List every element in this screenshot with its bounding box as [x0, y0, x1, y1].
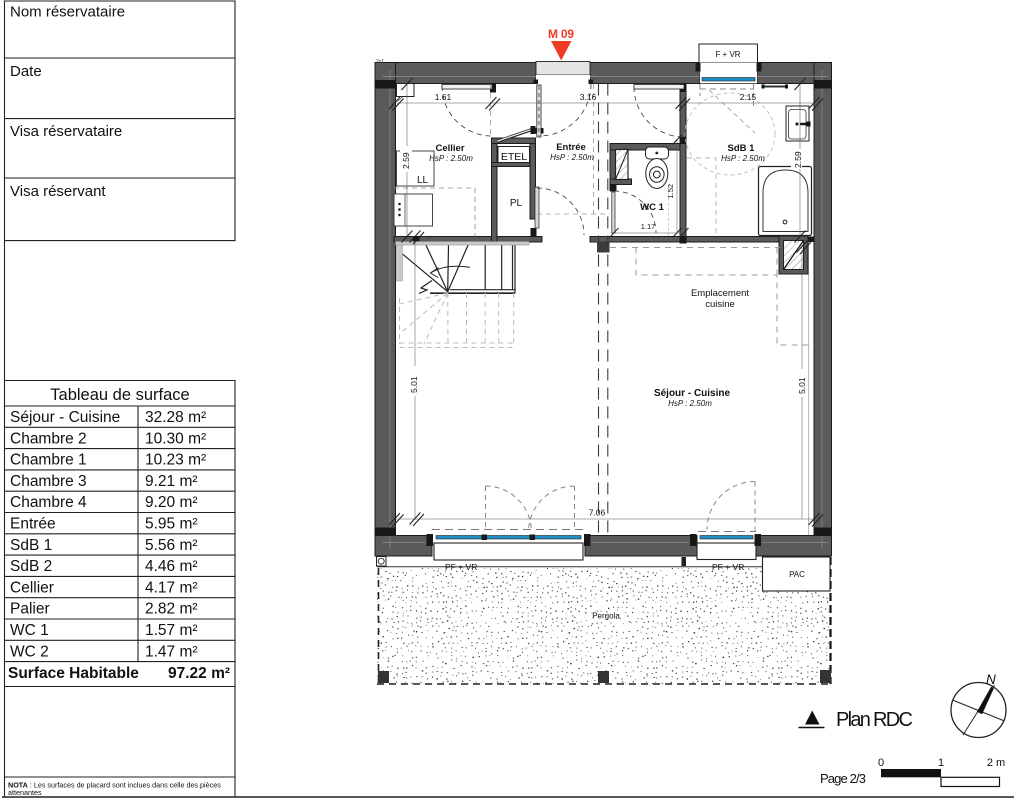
svg-text:Cellier: Cellier [435, 143, 464, 154]
svg-text:Nom réservataire: Nom réservataire [10, 4, 125, 21]
svg-text:cuisine: cuisine [705, 299, 735, 310]
svg-text:1.52: 1.52 [666, 184, 675, 199]
svg-text:Visa réservataire: Visa réservataire [10, 123, 122, 140]
svg-text:7.06: 7.06 [589, 508, 606, 518]
svg-text:HsP : 2.50m: HsP : 2.50m [668, 399, 712, 408]
svg-text:5.56 m²: 5.56 m² [145, 537, 198, 554]
svg-text:2.15: 2.15 [740, 92, 757, 102]
svg-text:M 09: M 09 [548, 27, 574, 41]
svg-text:5.01: 5.01 [409, 376, 419, 393]
svg-text:Palier: Palier [10, 601, 50, 618]
svg-text:PAC: PAC [789, 570, 805, 579]
svg-text:WC 2: WC 2 [10, 643, 49, 660]
svg-text:Chambre 1: Chambre 1 [10, 452, 87, 469]
svg-text:SdB 1: SdB 1 [728, 143, 756, 154]
svg-text:9.21 m²: 9.21 m² [145, 473, 198, 490]
svg-text:Page 2/3: Page 2/3 [820, 771, 866, 786]
svg-text:Date: Date [10, 63, 42, 80]
svg-text:Chambre 3: Chambre 3 [10, 473, 87, 490]
svg-text:2.59: 2.59 [793, 151, 803, 168]
svg-text:5.95 m²: 5.95 m² [145, 516, 198, 533]
svg-text:HsP : 2.50m: HsP : 2.50m [429, 154, 473, 163]
svg-text:Surface Habitable: Surface Habitable [8, 665, 139, 682]
svg-text:2.82 m²: 2.82 m² [145, 601, 198, 618]
svg-text:3.16: 3.16 [580, 92, 597, 102]
svg-text:attenantes: attenantes [8, 788, 42, 797]
svg-text:WC 1: WC 1 [640, 202, 664, 213]
svg-text:0: 0 [878, 757, 884, 769]
svg-text:SdB 1: SdB 1 [10, 537, 52, 554]
svg-text:1: 1 [938, 757, 944, 769]
svg-text:N: N [986, 672, 996, 687]
svg-text:Entrée: Entrée [556, 142, 586, 153]
svg-text:2 m: 2 m [987, 757, 1005, 769]
svg-text:10.30 m²: 10.30 m² [145, 430, 206, 447]
svg-text:Tableau de surface: Tableau de surface [50, 386, 189, 404]
svg-text:Emplacement: Emplacement [691, 288, 749, 299]
svg-text:Chambre 4: Chambre 4 [10, 494, 87, 511]
svg-text:Cellier: Cellier [10, 579, 54, 596]
svg-text:Pergola: Pergola [592, 612, 620, 621]
svg-text:F + VR: F + VR [715, 50, 740, 59]
svg-text:PL: PL [510, 198, 523, 209]
svg-text:5.01: 5.01 [797, 377, 807, 394]
svg-text:1.57 m²: 1.57 m² [145, 622, 198, 639]
svg-text:SdB 2: SdB 2 [10, 558, 52, 575]
svg-text:HsP : 2.50m: HsP : 2.50m [721, 154, 765, 163]
svg-text:PF + VR: PF + VR [445, 562, 477, 572]
svg-text:2x1: 2x1 [376, 59, 384, 65]
svg-text:Séjour - Cuisine: Séjour - Cuisine [654, 388, 731, 399]
svg-text:LL: LL [417, 175, 429, 186]
svg-text:1.61: 1.61 [435, 92, 452, 102]
svg-text:32.28 m²: 32.28 m² [145, 409, 206, 426]
svg-text:1.17: 1.17 [641, 222, 656, 231]
svg-text:4.46 m²: 4.46 m² [145, 558, 198, 575]
svg-text:WC 1: WC 1 [10, 622, 49, 639]
svg-text:Visa réservant: Visa réservant [10, 183, 106, 200]
svg-text:PF + VR: PF + VR [712, 562, 744, 572]
svg-text:Entrée: Entrée [10, 516, 56, 533]
svg-text:97.22 m²: 97.22 m² [168, 665, 230, 682]
svg-text:Séjour - Cuisine: Séjour - Cuisine [10, 409, 120, 426]
svg-text:2.59: 2.59 [401, 152, 411, 169]
svg-text:Chambre 2: Chambre 2 [10, 430, 87, 447]
svg-text:HsP : 2.50m: HsP : 2.50m [550, 153, 594, 162]
svg-text:1.47 m²: 1.47 m² [145, 643, 198, 660]
svg-text:ETEL: ETEL [501, 151, 527, 163]
svg-text:4.17 m²: 4.17 m² [145, 579, 198, 596]
svg-text:Plan RDC: Plan RDC [836, 709, 913, 731]
svg-text:10.23 m²: 10.23 m² [145, 452, 206, 469]
svg-text:9.20 m²: 9.20 m² [145, 494, 198, 511]
